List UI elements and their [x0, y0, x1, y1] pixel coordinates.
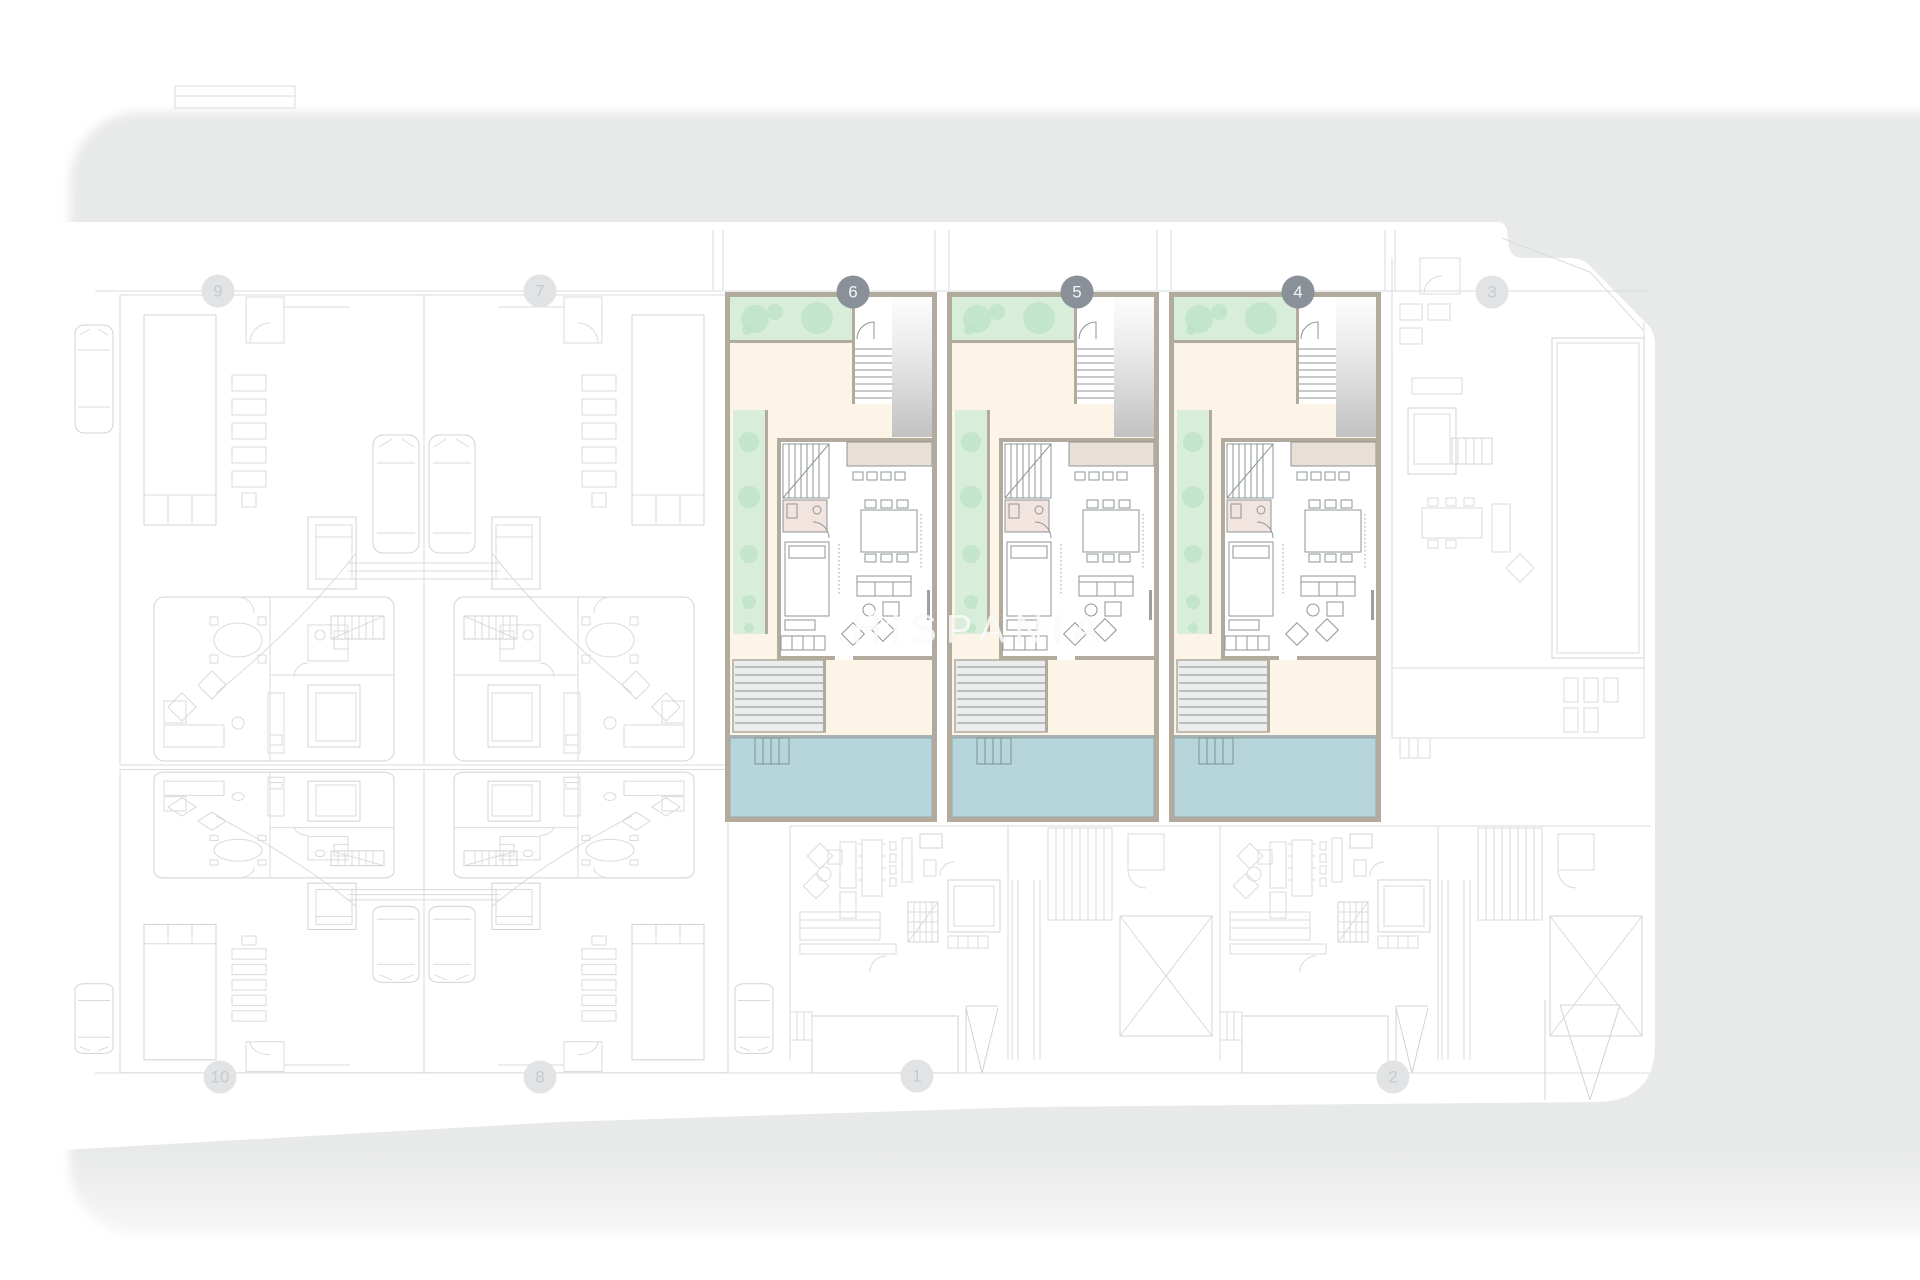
unit-badge-9[interactable]: 9 — [202, 275, 235, 308]
unit-badge-4[interactable]: 4 — [1282, 276, 1315, 309]
unit-badge-5[interactable]: 5 — [1061, 276, 1094, 309]
unit-badge-3[interactable]: 3 — [1476, 276, 1509, 309]
unit-4-area[interactable] — [1169, 292, 1381, 822]
unit-badge-1[interactable]: 1 — [901, 1060, 934, 1093]
site-plan-canvas: 9 7 6 5 4 3 10 8 1 2 HISPANIA — [0, 0, 1920, 1280]
bottom-fade — [0, 1150, 1920, 1280]
unit-badge-10[interactable]: 10 — [204, 1061, 237, 1094]
unit-6-area[interactable] — [725, 292, 937, 822]
unit-badge-8[interactable]: 8 — [524, 1061, 557, 1094]
unit-5-area[interactable] — [947, 292, 1159, 822]
unit-badge-2[interactable]: 2 — [1377, 1061, 1410, 1094]
unit-badge-7[interactable]: 7 — [524, 275, 557, 308]
unit-badge-6[interactable]: 6 — [837, 276, 870, 309]
